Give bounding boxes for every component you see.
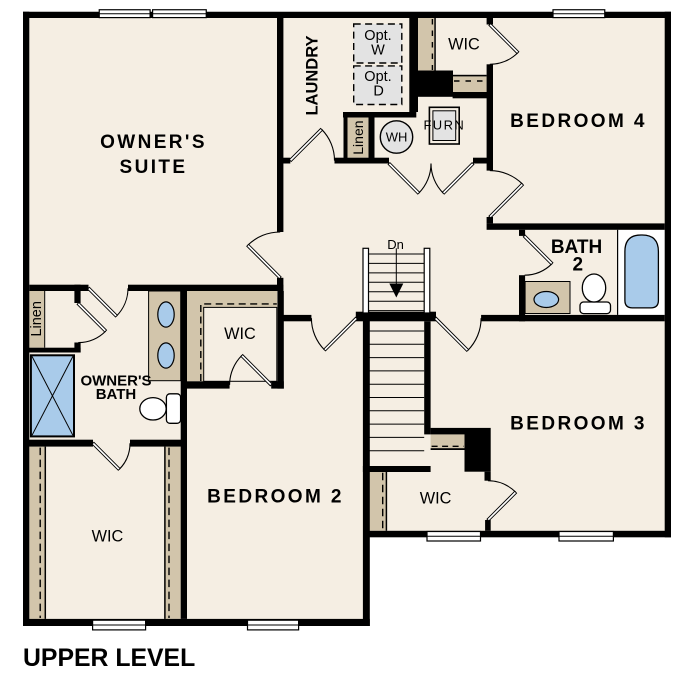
svg-text:WH: WH (386, 130, 408, 145)
svg-text:D: D (373, 84, 383, 100)
svg-text:Opt.: Opt. (364, 28, 391, 44)
svg-text:WIC: WIC (92, 528, 124, 546)
svg-text:WIC: WIC (448, 35, 480, 53)
svg-text:UPPER LEVEL: UPPER LEVEL (23, 645, 195, 672)
svg-text:BEDROOM 2: BEDROOM 2 (207, 487, 344, 508)
svg-text:BEDROOM 3: BEDROOM 3 (510, 414, 647, 435)
svg-text:WIC: WIC (224, 325, 256, 343)
svg-text:OWNER'S: OWNER'S (100, 132, 207, 153)
svg-text:BATH: BATH (96, 386, 137, 403)
svg-text:WIC: WIC (420, 490, 452, 508)
svg-text:Dn: Dn (387, 237, 404, 252)
svg-text:Linen: Linen (350, 120, 366, 154)
svg-text:W: W (371, 43, 385, 59)
svg-text:LAUNDRY: LAUNDRY (304, 35, 322, 115)
svg-text:2: 2 (573, 254, 584, 275)
svg-text:Linen: Linen (29, 301, 45, 336)
svg-text:SUITE: SUITE (120, 157, 188, 178)
svg-text:FURN: FURN (423, 118, 465, 133)
svg-text:BEDROOM 4: BEDROOM 4 (510, 111, 647, 132)
